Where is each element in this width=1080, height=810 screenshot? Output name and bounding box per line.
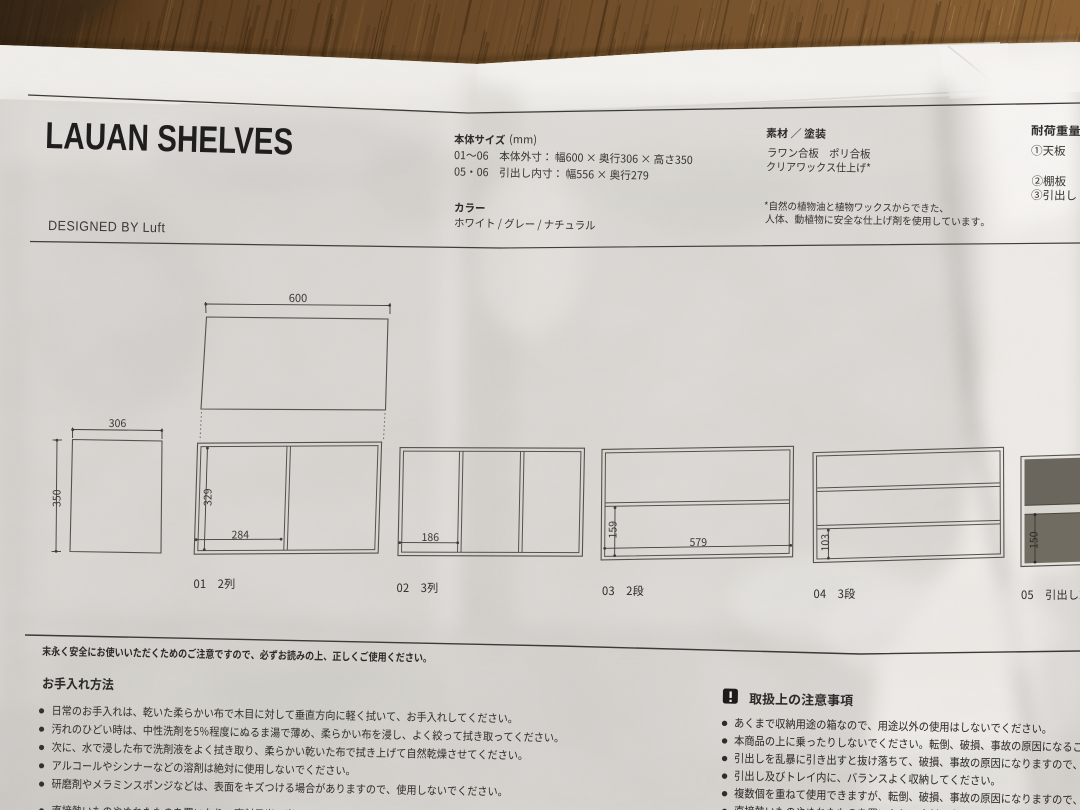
svg-text:LAUAN SHELVES: LAUAN SHELVES	[45, 115, 294, 164]
svg-text:DESIGNED BY Luft: DESIGNED BY Luft	[48, 218, 166, 236]
